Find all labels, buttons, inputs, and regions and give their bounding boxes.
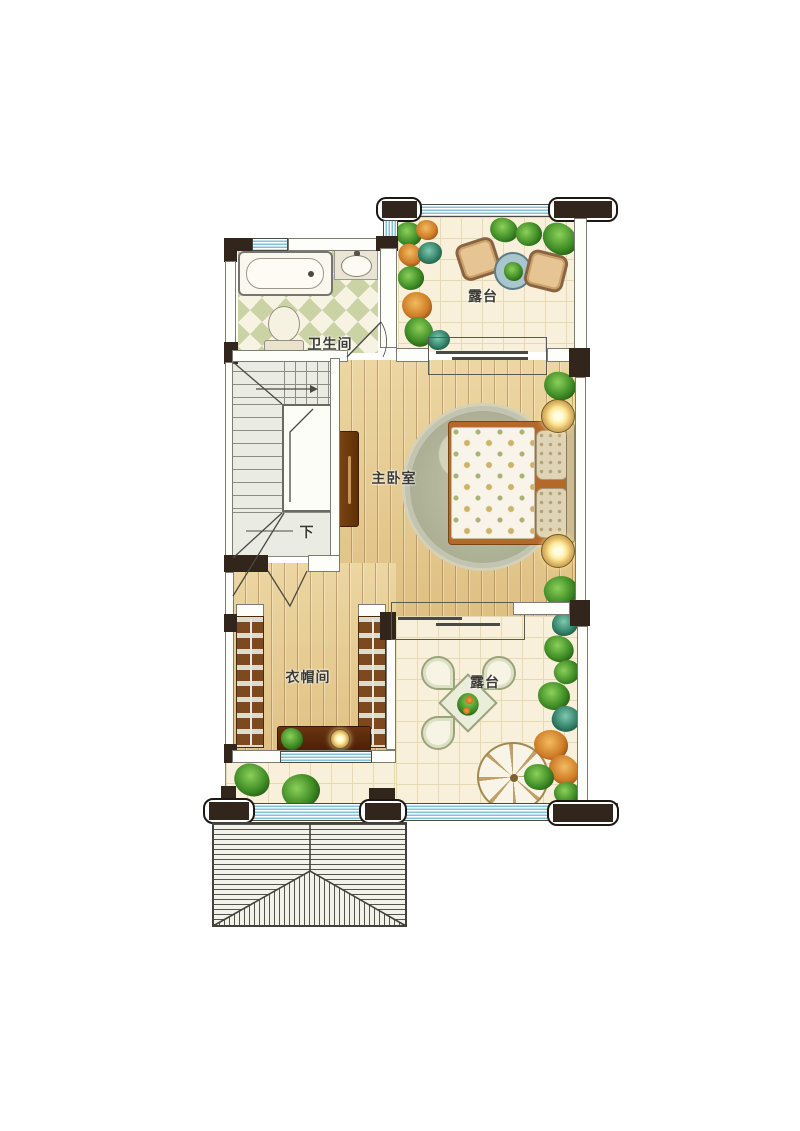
room-label-bathroom: 卫生间 <box>296 334 364 354</box>
railing-post-core <box>553 804 613 822</box>
wall-segment <box>224 555 268 572</box>
umbrella-hub <box>510 774 518 782</box>
patio-chair <box>421 716 455 750</box>
sliding-door <box>436 623 500 626</box>
stair-winders <box>284 358 332 404</box>
bed-pillow <box>536 488 568 538</box>
wall-segment <box>575 377 586 602</box>
wall-segment <box>225 572 234 762</box>
sink-faucet <box>354 251 360 256</box>
railing-post-core <box>365 803 401 820</box>
wall-segment <box>574 218 587 350</box>
sink-basin <box>341 255 372 277</box>
wall-segment <box>396 348 429 362</box>
floor-plan: 露台 卫生间 主卧室 衣帽间 露台 下 <box>0 0 800 1131</box>
wall-segment <box>547 348 571 362</box>
sliding-door <box>452 357 528 360</box>
bathtub-drain <box>308 271 314 277</box>
nightstand-lamp <box>541 399 575 433</box>
wall-segment <box>308 555 340 572</box>
wall-segment <box>569 348 590 377</box>
sliding-door <box>436 351 528 354</box>
nightstand-lamp <box>541 534 575 568</box>
stairs-down-label: 下 <box>296 522 318 542</box>
stair-void <box>282 404 332 512</box>
patio-chair <box>421 656 455 690</box>
room-label-cloakroom: 衣帽间 <box>272 667 344 687</box>
plant <box>416 220 438 240</box>
wall-segment <box>224 238 237 262</box>
plant <box>281 728 303 750</box>
window <box>280 751 372 763</box>
table-plant <box>504 262 523 281</box>
wardrobe-rail <box>250 619 252 745</box>
plant <box>524 764 554 790</box>
bathtub <box>238 251 333 296</box>
headboard <box>566 424 575 542</box>
bench-lamp <box>330 729 350 749</box>
wall-segment <box>380 248 397 348</box>
stair-landing-line <box>232 512 332 513</box>
window <box>252 238 288 251</box>
door-threshold <box>428 337 547 375</box>
wall-segment <box>225 261 236 343</box>
railing-post-core <box>209 802 249 820</box>
bed-duvet <box>451 427 535 539</box>
wall-segment <box>577 626 588 806</box>
sliding-door <box>398 617 462 620</box>
wall-segment <box>225 362 233 557</box>
tv-cabinet <box>338 431 359 527</box>
wall-segment <box>513 602 570 615</box>
room-label-terrace-bottom: 露台 <box>457 672 513 692</box>
railing-post-core <box>382 201 417 218</box>
sink-counter <box>334 250 378 280</box>
door-threshold <box>391 602 525 640</box>
wall-segment <box>570 600 590 626</box>
room-label-terrace-top: 露台 <box>455 286 511 306</box>
roof <box>212 822 407 927</box>
wall-segment <box>288 238 378 251</box>
tv-cabinet-handle <box>348 456 351 504</box>
wall-segment <box>224 614 237 632</box>
wardrobe <box>236 616 264 748</box>
wall-segment <box>330 358 340 557</box>
roof-hip-hatch <box>214 824 405 925</box>
railing-post-core <box>554 201 612 218</box>
stair-steps-left <box>232 404 282 512</box>
bed-pillow <box>536 430 568 480</box>
room-label-bedroom: 主卧室 <box>358 468 430 488</box>
wardrobe-rail <box>372 619 374 745</box>
